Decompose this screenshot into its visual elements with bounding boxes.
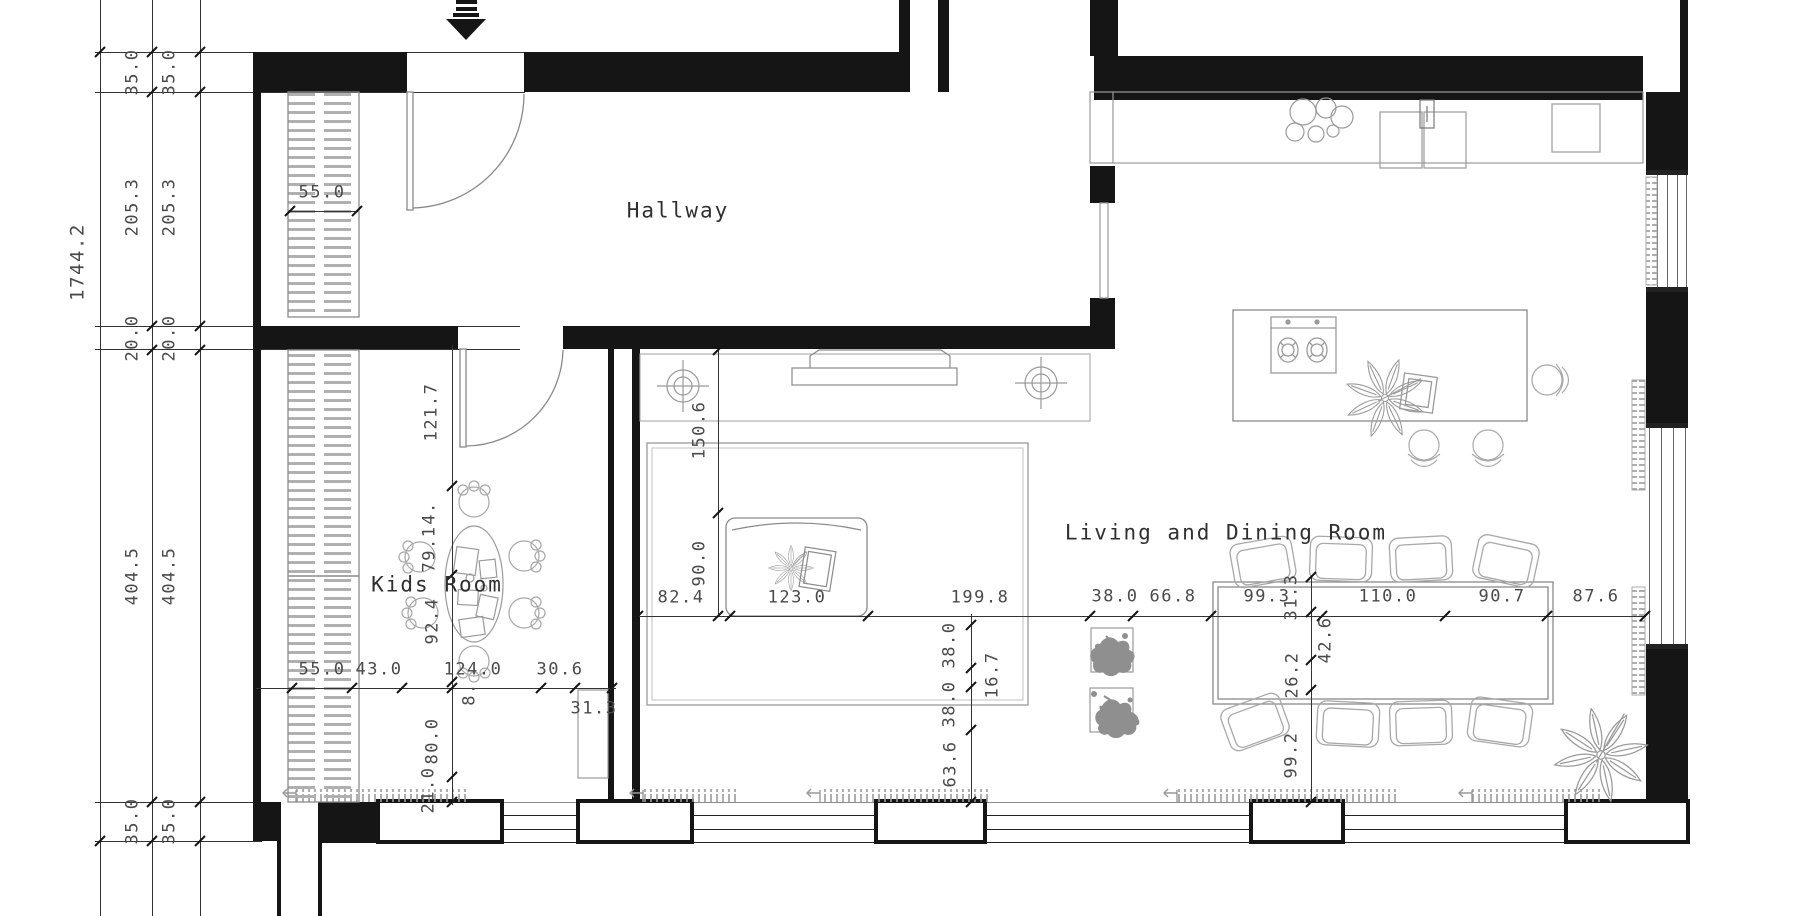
dimension-label: 38.0 <box>942 681 959 728</box>
dimension-label: 42.6 <box>1318 617 1335 664</box>
dimension-label: 31.3 <box>1284 574 1301 621</box>
dimension-label: 16.7 <box>985 652 1002 699</box>
dimension-label: 110.0 <box>1359 589 1418 606</box>
dimension-label: 38.0 <box>942 622 959 669</box>
dimension-label: 90.7 <box>1479 589 1526 606</box>
dimension-label: 90.0 <box>692 540 709 587</box>
labels-layer: 1744.235.035.0205.3205.320.020.0404.5404… <box>0 0 1799 916</box>
dimension-label: 4. <box>422 501 439 524</box>
dimension-label: 404.5 <box>162 547 179 606</box>
dimension-label: 150.6 <box>692 401 709 460</box>
dimension-label: 55.0 <box>299 185 346 202</box>
room-label: Hallway <box>627 201 730 222</box>
dimension-label: 21.0 <box>421 767 438 814</box>
dimension-label: 35.0 <box>125 798 142 845</box>
dimension-label: 80.0 <box>425 718 442 765</box>
dimension-label: 35.0 <box>125 49 142 96</box>
dimension-label: 123.0 <box>768 590 827 607</box>
dimension-label: 31.3 <box>571 701 618 718</box>
dimension-label: 121.7 <box>424 383 441 442</box>
dimension-label: 404.5 <box>125 547 142 606</box>
dimension-label: 20.0 <box>125 315 142 362</box>
dimension-label: 8. <box>462 682 479 705</box>
dimension-label: 124.0 <box>444 662 503 679</box>
dimension-label: 1744.2 <box>69 223 88 301</box>
dimension-label: 199.8 <box>951 590 1010 607</box>
dimension-label: 38.0 <box>1092 589 1139 606</box>
dimension-label: 99.2 <box>1284 732 1301 779</box>
dimension-label: 30.6 <box>537 662 584 679</box>
dimension-label: 35.0 <box>162 798 179 845</box>
dimension-label: 92.4 <box>425 598 442 645</box>
dimension-label: 205.3 <box>125 178 142 237</box>
dimension-label: 55.0 <box>299 662 346 679</box>
dimension-label: 66.8 <box>1150 589 1197 606</box>
dimension-label: 82.4 <box>658 590 705 607</box>
dimension-label: 35.0 <box>162 49 179 96</box>
dimension-label: 205.3 <box>162 178 179 237</box>
floor-plan: 1744.235.035.0205.3205.320.020.0404.5404… <box>0 0 1799 916</box>
room-label: Living and Dining Room <box>1065 523 1387 544</box>
dimension-label: 20.0 <box>162 315 179 362</box>
dimension-label: 26.2 <box>1285 652 1302 699</box>
dimension-label: 63.6 <box>943 741 960 788</box>
dimension-label: 43.0 <box>356 662 403 679</box>
dimension-label: 87.6 <box>1573 589 1620 606</box>
room-label: Kids Room <box>371 575 503 596</box>
dimension-label: 79.1 <box>422 526 439 573</box>
